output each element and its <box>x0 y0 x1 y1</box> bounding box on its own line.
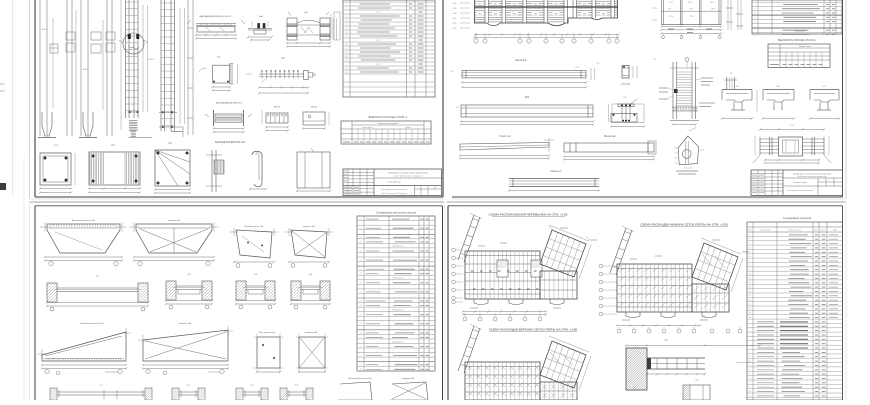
svg-text:1: 1 <box>243 17 244 19</box>
svg-text:2: 2 <box>750 239 751 241</box>
svg-text:19: 19 <box>749 313 751 315</box>
svg-text:М8х20: М8х20 <box>274 107 281 109</box>
svg-text:2400: 2400 <box>453 23 457 25</box>
svg-text:опалубка №4: опалубка №4 <box>305 331 318 334</box>
svg-text:1: 1 <box>360 250 361 252</box>
svg-text:М-1: М-1 <box>668 9 671 11</box>
svg-text:5: 5 <box>750 369 751 371</box>
svg-text:Материалы: Материалы <box>393 246 404 248</box>
svg-text:ПК1: ПК1 <box>555 4 558 6</box>
svg-text:1: 1 <box>360 282 361 284</box>
svg-text:Связь С-1: Связь С-1 <box>550 170 562 173</box>
svg-text:ПК8: ПК8 <box>555 14 558 16</box>
svg-text:5: 5 <box>754 22 755 24</box>
svg-text:Поз: Поз <box>749 230 752 232</box>
svg-text:опалубка №5: опалубка №5 <box>402 377 415 380</box>
svg-text:Б-Б: Б-Б <box>304 12 308 14</box>
svg-text:10: 10 <box>749 274 751 276</box>
svg-text:15: 15 <box>749 295 751 297</box>
svg-text:8: 8 <box>640 99 641 101</box>
svg-text:А-А: А-А <box>259 15 263 18</box>
svg-text:ПК8: ПК8 <box>602 14 605 16</box>
svg-text:СХЕМА РАСКЛАДКИ НИЖНИХ СЕТОК П: СХЕМА РАСКЛАДКИ НИЖНИХ СЕТОК ПЛИТЫ НА ОТ… <box>640 223 728 227</box>
svg-text:Арматура кл.: Арматура кл. <box>363 126 374 129</box>
svg-text:1: 1 <box>645 118 646 120</box>
svg-text:10: 10 <box>749 391 751 393</box>
svg-text:Строп №1: Строп №1 <box>499 135 511 138</box>
svg-text:ПК1: ПК1 <box>602 4 605 6</box>
svg-text:НАКЛАДКА ДЕТАЛЬ №1 М1:20: НАКЛАДКА ДЕТАЛЬ №1 М1:20 <box>199 15 231 18</box>
svg-text:1: 1 <box>360 237 361 239</box>
svg-text:1: 1 <box>360 305 361 307</box>
svg-text:Монолитный уч. №2: Монолитный уч. №2 <box>245 225 265 228</box>
svg-text:1: 1 <box>754 4 755 6</box>
svg-text:90.2: 90.2 <box>575 67 579 69</box>
svg-text:7: 7 <box>750 378 751 380</box>
svg-text:опалубка №1: опалубка №1 <box>168 219 181 222</box>
svg-text:7: 7 <box>750 260 751 262</box>
svg-text:М8х30: М8х30 <box>311 107 318 109</box>
svg-text:1: 1 <box>360 228 361 230</box>
svg-text:Монолитный участок №5: Монолитный участок №5 <box>348 377 372 380</box>
svg-text:ПР-1: ПР-1 <box>710 2 714 4</box>
svg-text:2400: 2400 <box>453 3 457 5</box>
svg-text:ПК1: ПК1 <box>479 4 482 6</box>
svg-text:Материалы: Материалы <box>795 31 806 33</box>
svg-text:2400: 2400 <box>453 18 457 20</box>
svg-text:ПР-4: ПР-4 <box>690 16 694 18</box>
svg-text:СХЕМА РАСПОЛОЖЕНИЯ ПЕРЕМЫЧЕК Н: СХЕМА РАСПОЛОЖЕНИЯ ПЕРЕМЫЧЕК НА ОТМ. +2.… <box>489 213 568 217</box>
svg-text:11: 11 <box>749 395 751 397</box>
svg-text:4: 4 <box>750 365 751 367</box>
svg-text:90.2: 90.2 <box>450 71 454 73</box>
svg-text:1: 1 <box>189 17 190 19</box>
svg-text:Спецификация монолитных участк: Спецификация монолитных участков <box>376 212 417 215</box>
svg-text:12000: 12000 <box>148 59 155 61</box>
svg-text:3000: 3000 <box>83 69 89 71</box>
svg-text:1: 1 <box>360 323 361 325</box>
svg-text:Кол: Кол <box>815 230 818 232</box>
svg-text:ПК8: ПК8 <box>479 14 482 16</box>
svg-text:1: 1 <box>360 260 361 262</box>
svg-text:ЗАКЛАДНАЯ ДЕТАЛЬ №2: ЗАКЛАДНАЯ ДЕТАЛЬ №2 <box>216 102 243 105</box>
svg-text:9: 9 <box>750 387 751 389</box>
svg-text:Монолитный участок №1: Монолитный участок №1 <box>72 219 96 222</box>
svg-text:1: 1 <box>360 273 361 275</box>
svg-text:СХЕМА РАСКЛАДКИ ВЕРХНИХ СЕТОК: СХЕМА РАСКЛАДКИ ВЕРХНИХ СЕТОК ПЛИТЫ НА О… <box>489 328 577 332</box>
svg-text:Обозначение: Обозначение <box>759 230 770 232</box>
svg-text:ВЕДОМОСТЬ РАСХОДА СТАЛИ, кг: ВЕДОМОСТЬ РАСХОДА СТАЛИ, кг <box>369 116 408 119</box>
svg-text:2400: 2400 <box>453 28 457 30</box>
svg-text:1: 1 <box>360 300 361 302</box>
svg-text:Материалы: Материалы <box>393 278 404 280</box>
svg-text:Мон. участок №4: Мон. участок №4 <box>259 331 276 334</box>
svg-text:18: 18 <box>749 308 751 310</box>
svg-text:4: 4 <box>754 17 755 19</box>
svg-text:ПР-2: ПР-2 <box>669 2 673 4</box>
svg-text:7: 7 <box>754 30 755 32</box>
svg-text:2-2: 2-2 <box>730 73 733 75</box>
svg-text:3: 3 <box>750 361 751 363</box>
svg-text:2: 2 <box>750 356 751 358</box>
svg-text:по ул. Примерной в г. Примерск: по ул. Примерной в г. Примерске <box>394 175 423 178</box>
svg-text:2400: 2400 <box>453 13 457 15</box>
svg-text:1: 1 <box>360 291 361 293</box>
svg-text:2: 2 <box>754 9 755 11</box>
svg-text:ОАО Проектстрой г. Примерск: ОАО Проектстрой г. Примерск <box>381 192 408 195</box>
svg-text:Балка №2: Балка №2 <box>604 135 616 138</box>
svg-text:5: 5 <box>750 252 751 254</box>
svg-text:ПК1: ПК1 <box>534 4 537 6</box>
svg-text:1: 1 <box>360 332 361 334</box>
svg-text:опалубка №3: опалубка №3 <box>179 322 192 325</box>
svg-text:1: 1 <box>360 337 361 339</box>
svg-text:1: 1 <box>750 352 751 354</box>
svg-text:3: 3 <box>754 13 755 15</box>
svg-text:1: 1 <box>360 241 361 243</box>
svg-text:ПР-2: ПР-2 <box>688 2 692 4</box>
svg-text:20: 20 <box>749 317 751 319</box>
svg-text:ПК8: ПК8 <box>513 14 516 16</box>
svg-text:ПК8: ПК8 <box>583 14 586 16</box>
svg-text:8: 8 <box>750 265 751 267</box>
svg-text:3000: 3000 <box>42 29 48 31</box>
svg-text:Сваи. Детали: Сваи. Детали <box>387 182 401 184</box>
svg-text:3: 3 <box>750 243 751 245</box>
svg-text:Жилой дом со встроенными помещ: Жилой дом со встроенными помещениями <box>388 172 428 175</box>
svg-text:ПР-3: ПР-3 <box>689 9 693 11</box>
svg-text:Прокат: Прокат <box>405 127 411 129</box>
svg-text:Марка стали: Марка стали <box>799 46 811 48</box>
svg-text:Монолитный участок №3: Монолитный участок №3 <box>80 322 104 325</box>
svg-text:ПК8: ПК8 <box>494 14 497 16</box>
svg-text:14: 14 <box>749 291 751 293</box>
svg-text:ПК1: ПК1 <box>494 4 497 6</box>
svg-text:1: 1 <box>360 369 361 371</box>
svg-text:ПК1: ПК1 <box>583 4 586 6</box>
svg-text:16: 16 <box>749 300 751 302</box>
svg-text:Б-Б: Б-Б <box>525 96 529 99</box>
svg-text:9: 9 <box>750 269 751 271</box>
svg-text:Конструкции металлические: Конструкции металлические <box>787 190 814 192</box>
svg-text:ЗАКЛАДНАЯ ДЕТАЛЬ №3: ЗАКЛАДНАЯ ДЕТАЛЬ №3 <box>215 141 246 144</box>
svg-text:Спецификация элементов: Спецификация элементов <box>783 217 812 220</box>
svg-text:1: 1 <box>360 269 361 271</box>
svg-text:8: 8 <box>754 35 755 37</box>
svg-text:11: 11 <box>749 278 751 280</box>
svg-text:1: 1 <box>360 364 361 366</box>
svg-text:Балка Б-1: Балка Б-1 <box>515 59 527 62</box>
svg-text:17: 17 <box>749 304 751 306</box>
svg-text:8: 8 <box>750 382 751 384</box>
svg-text:ПК1: ПК1 <box>513 4 516 6</box>
svg-text:Материалы: Материалы <box>393 341 404 343</box>
svg-text:4: 4 <box>750 247 751 249</box>
svg-text:1: 1 <box>750 234 751 236</box>
svg-text:Изделия арматурные: Изделия арматурные <box>378 123 399 125</box>
svg-text:6: 6 <box>750 374 751 376</box>
svg-text:1: 1 <box>360 219 361 221</box>
svg-text:2400: 2400 <box>453 8 457 10</box>
svg-text:Балки. Связи: Балки. Связи <box>794 182 808 184</box>
svg-text:1: 1 <box>360 346 361 348</box>
svg-text:Конструкции железобетонные: Конструкции железобетонные <box>381 189 407 191</box>
svg-text:Материалы: Материалы <box>393 309 404 311</box>
svg-text:Масса: Масса <box>821 230 826 232</box>
svg-text:ПР-3: ПР-3 <box>711 9 715 11</box>
svg-text:1: 1 <box>360 314 361 316</box>
svg-text:12: 12 <box>749 282 751 284</box>
svg-text:Узел связи: Узел связи <box>684 168 693 170</box>
svg-text:1: 1 <box>360 355 361 357</box>
svg-text:13: 13 <box>749 287 751 289</box>
svg-text:металлоконструкции перекрытия: металлоконструкции перекрытия <box>797 176 826 178</box>
svg-text:ВЕДОМОСТЬ РАСХОДА СТАЛИ кг: ВЕДОМОСТЬ РАСХОДА СТАЛИ кг <box>778 39 816 42</box>
svg-text:ПР-4: ПР-4 <box>669 16 673 18</box>
svg-text:Наименование: Наименование <box>789 230 801 232</box>
svg-text:6: 6 <box>750 256 751 258</box>
svg-text:ПК8: ПК8 <box>534 14 537 16</box>
svg-text:опалубка №2: опалубка №2 <box>303 225 316 228</box>
